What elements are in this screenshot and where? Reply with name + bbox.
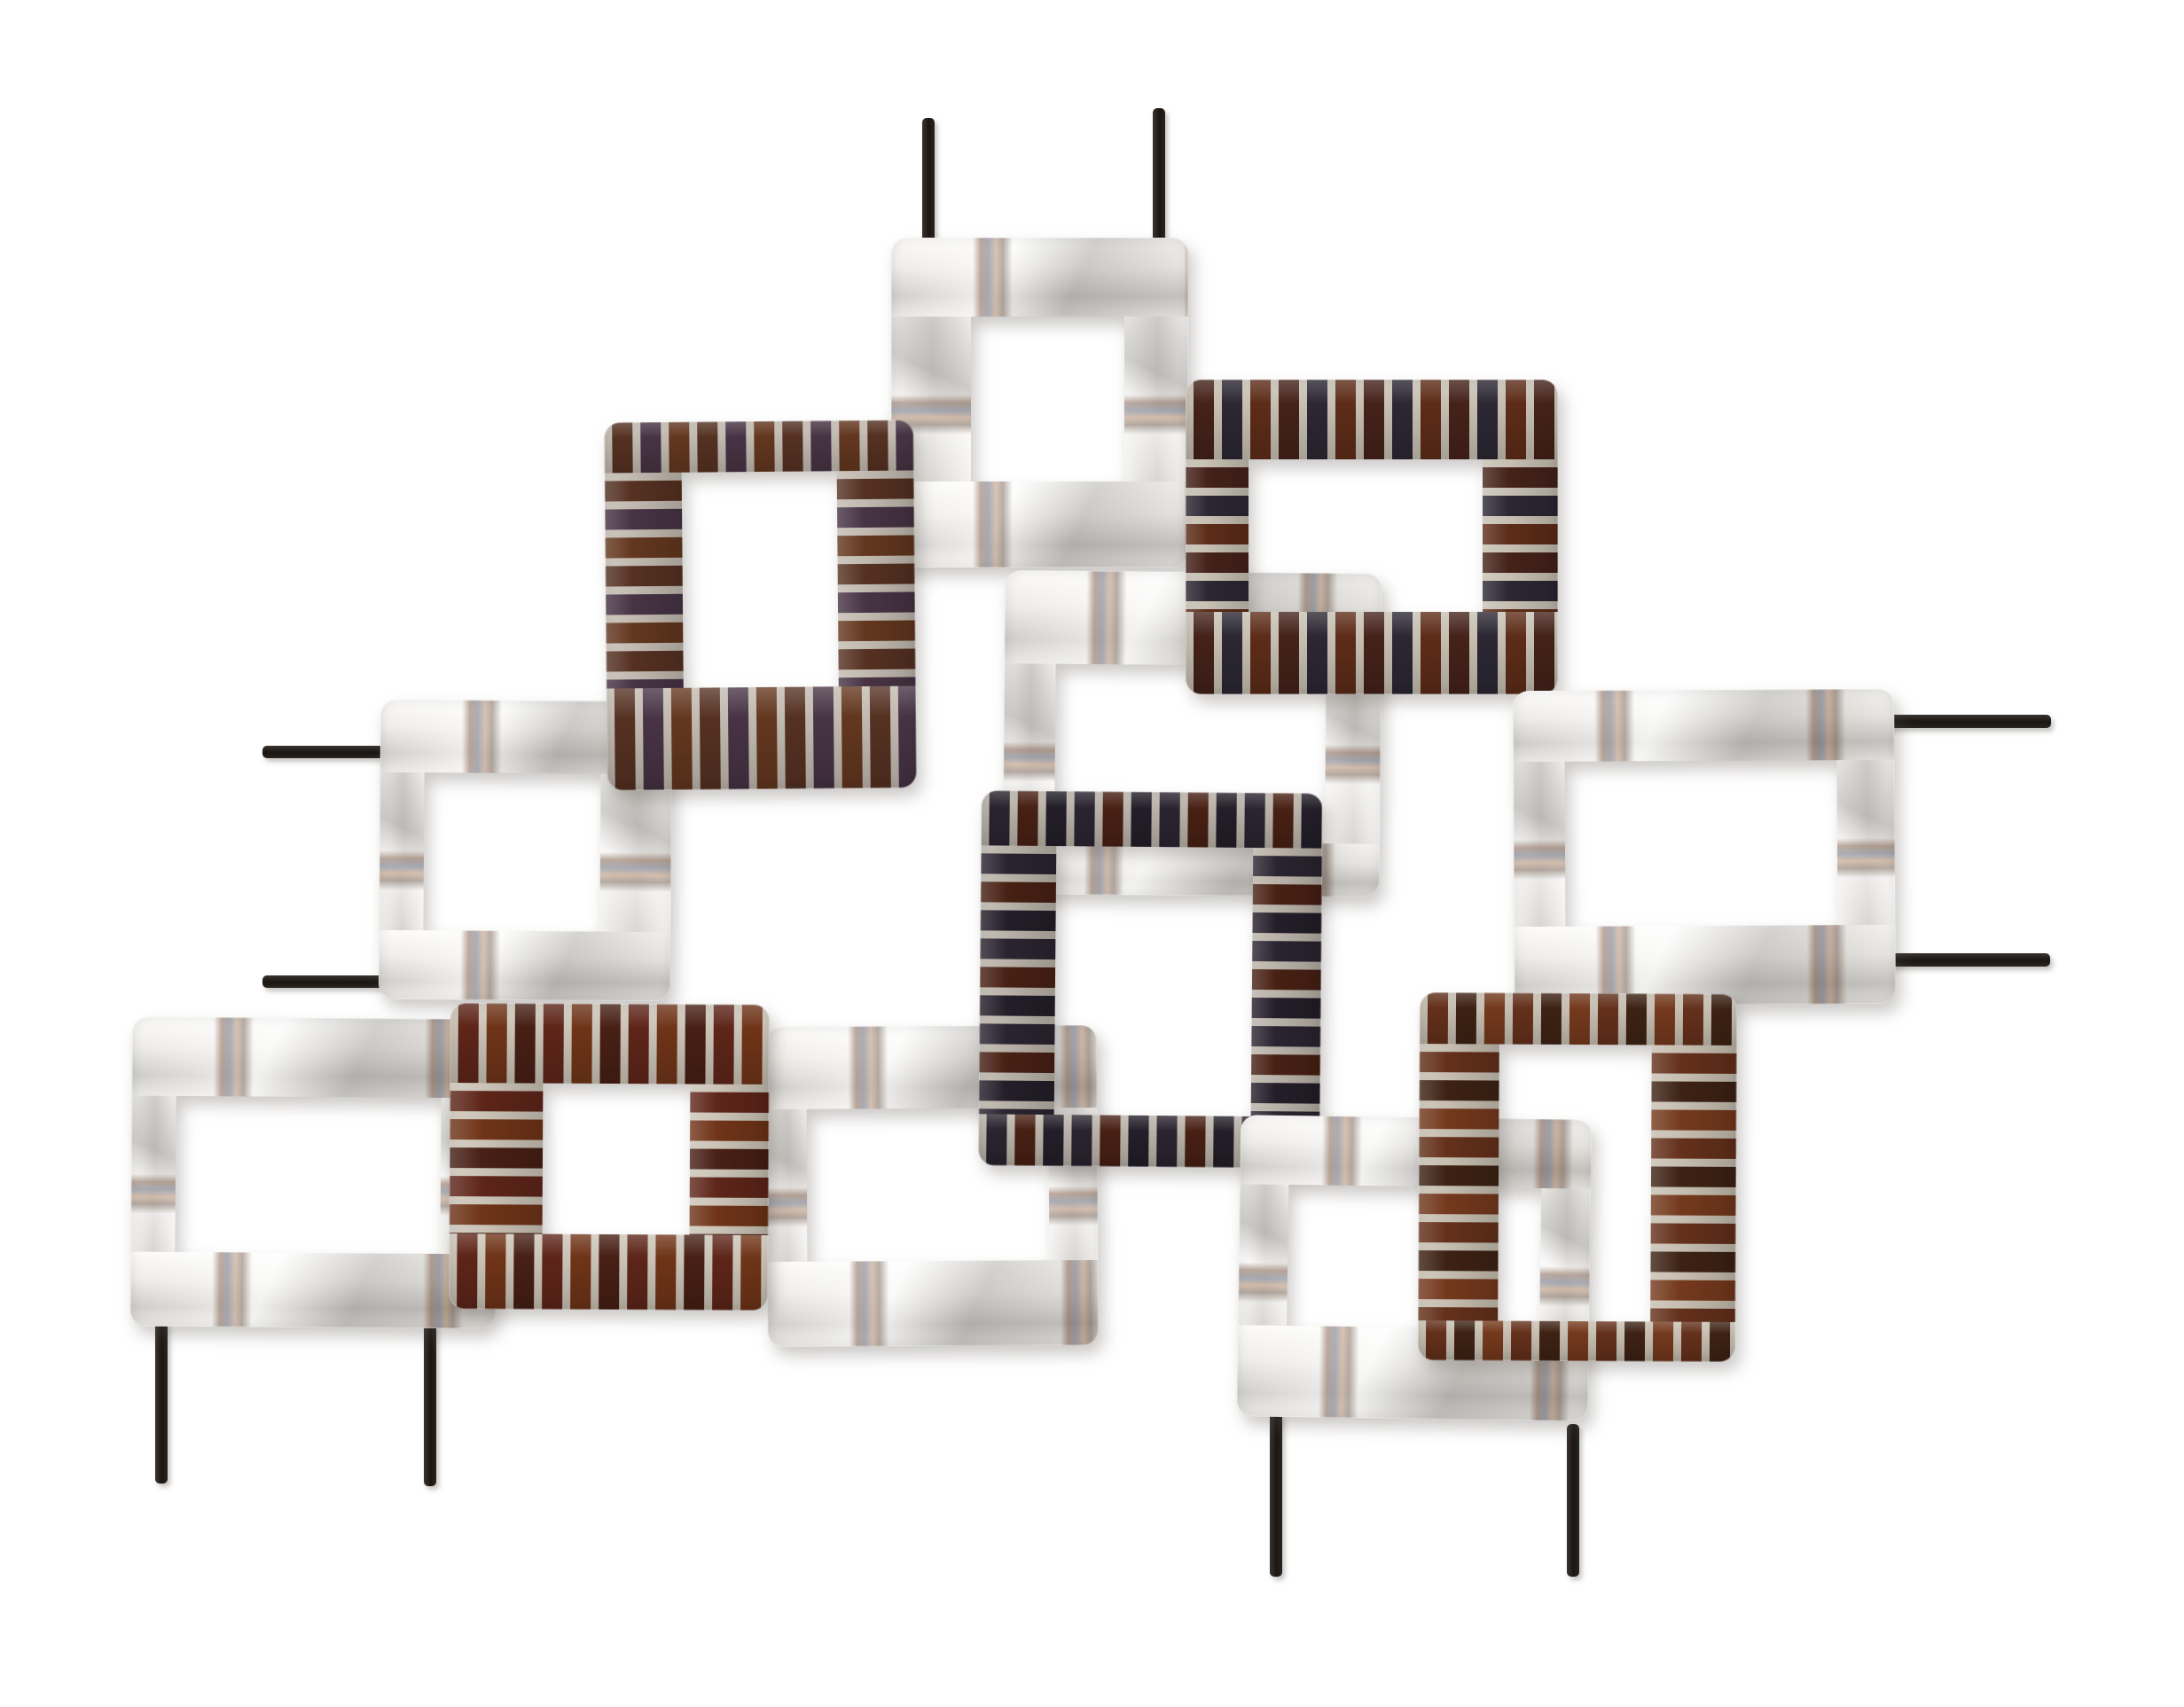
frame-left-striped-band-top xyxy=(604,419,913,473)
rod-left-lower xyxy=(262,975,395,988)
frame-center-striped-band-right xyxy=(1251,848,1323,1117)
frame-center-striped-band-top xyxy=(981,790,1323,848)
frame-top-center-chrome-band-top xyxy=(891,238,1188,317)
frame-bottom-left-striped-band-top xyxy=(450,1003,769,1084)
frame-bottom-center-chrome-band-left xyxy=(767,1109,808,1262)
frame-left-striped-band-left xyxy=(605,473,684,689)
rod-right-lower xyxy=(1878,953,2050,967)
frame-top-center-chrome xyxy=(891,238,1188,568)
frame-bottom-left-striped-band-bottom xyxy=(449,1233,768,1311)
frame-center-striped-band-left xyxy=(979,845,1057,1115)
frame-left-striped-band-bottom xyxy=(607,685,917,790)
frame-bottom-left-chrome xyxy=(130,1017,497,1329)
frame-right-chrome xyxy=(1513,689,1896,1006)
frame-right-chrome-band-top xyxy=(1513,689,1894,762)
frame-bottom-left-chrome-band-bottom xyxy=(130,1252,497,1329)
frame-top-right-striped-band-bottom xyxy=(1186,612,1558,694)
rod-bottom-left-2 xyxy=(424,1323,436,1486)
frame-center-striped xyxy=(978,790,1323,1168)
rod-top-right xyxy=(1153,108,1165,259)
frame-bottom-right-striped-band-right xyxy=(1650,1045,1737,1321)
frame-bottom-right-striped-band-bottom xyxy=(1418,1320,1735,1362)
rod-bottom-left-1 xyxy=(155,1321,168,1484)
frame-bottom-left-chrome-band-top xyxy=(132,1017,498,1099)
rod-right-upper xyxy=(1880,715,2051,728)
rod-left-upper xyxy=(262,746,395,758)
frame-bottom-right-striped-band-top xyxy=(1420,992,1737,1045)
frame-left-striped-band-right xyxy=(837,470,916,686)
frame-left-striped xyxy=(604,419,917,790)
frame-bottom-right-striped-band-left xyxy=(1418,1044,1499,1320)
frame-right-chrome-band-right xyxy=(1836,760,1895,925)
frame-bottom-left-chrome-band-left xyxy=(130,1096,176,1252)
frame-mid-left-chrome-band-left xyxy=(379,772,424,930)
frame-top-right-striped-band-left xyxy=(1186,459,1249,612)
rod-bottom-right-1 xyxy=(1270,1412,1282,1577)
rod-bottom-right-2 xyxy=(1567,1424,1579,1577)
frame-bottom-left-striped xyxy=(449,1003,770,1311)
frame-right-chrome-band-left xyxy=(1513,762,1565,927)
frame-top-right-striped xyxy=(1186,380,1558,694)
frame-mid-left-chrome-band-bottom xyxy=(379,930,671,1001)
frame-top-right-striped-band-right xyxy=(1483,459,1558,612)
frame-mid-left-chrome-band-right xyxy=(599,774,671,933)
frame-bottom-left-striped-band-right xyxy=(690,1084,770,1234)
frame-bottom-right-striped xyxy=(1418,992,1737,1362)
frame-bottom-center-chrome-band-bottom xyxy=(767,1260,1098,1347)
frame-top-center-chrome-band-right xyxy=(1124,317,1188,482)
frame-bottom-left-striped-band-left xyxy=(450,1083,544,1234)
frame-bottom-right-chrome-band-left xyxy=(1238,1184,1288,1326)
artwork-canvas xyxy=(0,0,2184,1707)
frame-top-center-chrome-band-bottom xyxy=(891,482,1188,568)
frame-top-right-striped-band-top xyxy=(1186,380,1558,459)
